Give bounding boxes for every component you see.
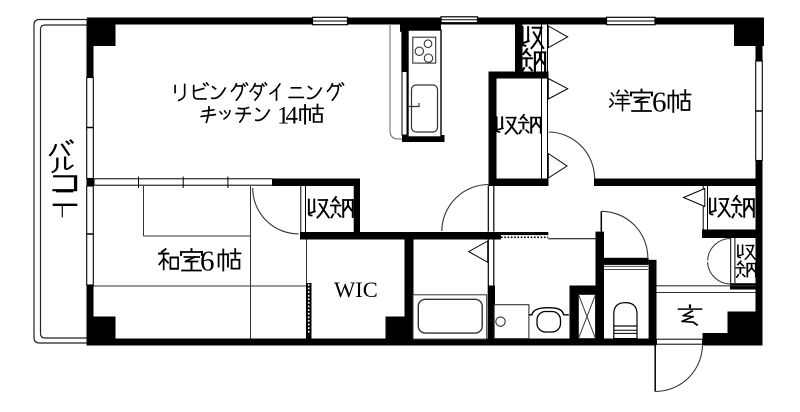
svg-text:6: 6 [652,87,667,119]
svg-text:6: 6 [200,246,215,278]
svg-text:WIC: WIC [334,277,378,302]
svg-text:14: 14 [277,103,299,130]
